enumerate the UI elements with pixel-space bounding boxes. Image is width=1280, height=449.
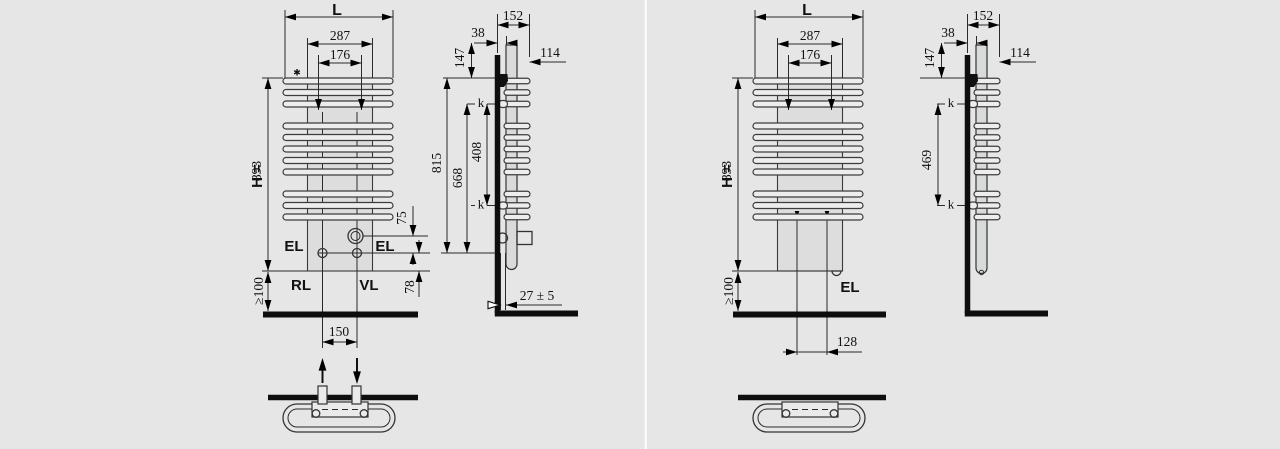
dim-label-150: 150 (329, 324, 350, 339)
dim-label-H-value-right: 893 (719, 161, 734, 182)
dim-label-408: 408 (469, 142, 484, 163)
dim-label-147-left: 147 (452, 48, 467, 69)
dim-label-38-right: 38 (941, 25, 955, 40)
background (0, 0, 1280, 449)
dim-label-H-value-left: 893 (249, 161, 264, 182)
dim-label-128: 128 (837, 334, 858, 349)
dim-label-147-right: 147 (922, 48, 937, 69)
dim-label-38-left: 38 (471, 25, 485, 40)
dim-label-815: 815 (429, 153, 444, 174)
technical-drawing-canvas: L 287 176 ✱ H = 893 (0, 0, 1280, 449)
label-el-left: EL (284, 238, 303, 255)
dim-label-176-left: 176 (330, 47, 351, 62)
dim-label-668: 668 (450, 168, 465, 189)
dim-floor-clearance-right: ≥100 (721, 272, 741, 311)
dim-label-176-right: 176 (800, 47, 821, 62)
plan-pipe-stub-left (318, 386, 327, 404)
panel-divider (645, 0, 648, 449)
dim-label-75: 75 (394, 211, 409, 225)
plan-pipe-stub-right (352, 386, 361, 404)
dim-label-152-left: 152 (503, 8, 523, 23)
label-rl: RL (291, 277, 311, 294)
dim-label-469: 469 (919, 150, 934, 171)
label-el-right: EL (375, 238, 394, 255)
dim-label-100-right: ≥100 (721, 277, 736, 305)
plan-bracket-right (782, 402, 838, 417)
dim-label-78: 78 (402, 280, 417, 294)
dim-label-27-5: 27 ± 5 (520, 288, 555, 303)
dim-label-L-left: L (332, 2, 342, 19)
dim-floor-clearance: ≥100 (251, 272, 271, 311)
dim-label-152-right: 152 (973, 8, 993, 23)
label-k-bottom-right: k (948, 196, 955, 211)
label-el-right-panel: EL (840, 279, 859, 296)
footnote-star: ✱ (293, 69, 301, 79)
label-vl: VL (359, 277, 378, 294)
dim-label-114-left: 114 (540, 45, 560, 60)
label-k-bottom-left: k (478, 196, 485, 211)
dim-label-114-right: 114 (1010, 45, 1030, 60)
dim-label-100-left: ≥100 (251, 277, 266, 305)
dim-label-287-left: 287 (330, 28, 351, 43)
radiator-dimension-drawing: L 287 176 ✱ H = 893 (0, 0, 1280, 449)
dim-label-L-right: L (802, 2, 812, 19)
label-k-top-left: k (478, 95, 485, 110)
label-k-top-right: k (948, 95, 955, 110)
dim-label-287-right: 287 (800, 28, 821, 43)
